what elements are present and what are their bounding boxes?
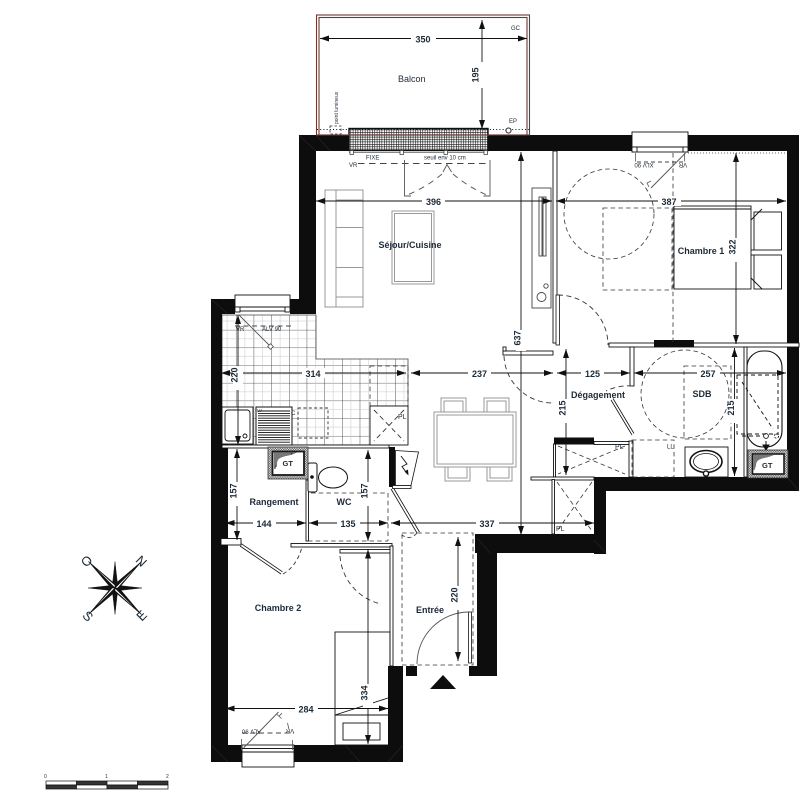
svg-text:Dégagement: Dégagement bbox=[571, 390, 625, 400]
svg-text:314: 314 bbox=[305, 369, 320, 379]
svg-text:PL: PL bbox=[556, 526, 565, 533]
svg-text:EP: EP bbox=[509, 119, 517, 125]
svg-text:387: 387 bbox=[661, 197, 676, 207]
svg-text:195: 195 bbox=[471, 67, 481, 82]
svg-text:220: 220 bbox=[450, 587, 460, 602]
svg-text:144: 144 bbox=[256, 519, 271, 529]
svg-text:257: 257 bbox=[700, 369, 715, 379]
svg-text:GC: GC bbox=[511, 26, 521, 32]
svg-text:Chambre 1: Chambre 1 bbox=[678, 246, 725, 256]
svg-text:XLV 90: XLV 90 bbox=[634, 161, 654, 167]
svg-text:0: 0 bbox=[44, 774, 47, 780]
svg-text:Chambre 2: Chambre 2 bbox=[255, 603, 302, 613]
svg-text:125: 125 bbox=[585, 369, 600, 379]
svg-text:PL: PL bbox=[398, 414, 407, 421]
svg-text:WC: WC bbox=[337, 497, 352, 507]
svg-text:215: 215 bbox=[726, 400, 736, 415]
svg-text:322: 322 bbox=[728, 239, 738, 254]
svg-text:C: C bbox=[291, 411, 296, 417]
svg-text:SDB: SDB bbox=[692, 389, 712, 399]
svg-text:VR: VR bbox=[285, 727, 294, 733]
svg-text:157: 157 bbox=[229, 483, 239, 498]
svg-text:GT: GT bbox=[762, 461, 773, 470]
svg-text:334: 334 bbox=[360, 685, 370, 700]
svg-text:350: 350 bbox=[415, 35, 430, 45]
svg-text:220: 220 bbox=[230, 367, 240, 382]
svg-text:Entrée: Entrée bbox=[416, 605, 444, 615]
svg-text:Rangement: Rangement bbox=[249, 497, 298, 507]
svg-text:Séjour/Cuisine: Séjour/Cuisine bbox=[378, 240, 441, 250]
svg-text:VR: VR bbox=[349, 163, 358, 169]
svg-text:LV: LV bbox=[257, 408, 262, 413]
svg-text:396: 396 bbox=[426, 197, 441, 207]
svg-text:237: 237 bbox=[472, 369, 487, 379]
svg-text:215: 215 bbox=[558, 400, 568, 415]
svg-text:2: 2 bbox=[166, 774, 169, 780]
svg-text:135: 135 bbox=[340, 519, 355, 529]
svg-text:GT: GT bbox=[283, 459, 294, 468]
svg-text:157: 157 bbox=[360, 483, 370, 498]
svg-text:point lumineux: point lumineux bbox=[334, 91, 340, 124]
svg-text:PL: PL bbox=[615, 444, 624, 451]
svg-text:VR: VR bbox=[236, 327, 245, 333]
svg-text:seuil env 10 cm: seuil env 10 cm bbox=[424, 156, 466, 162]
svg-text:284: 284 bbox=[298, 705, 313, 715]
svg-text:LL: LL bbox=[667, 445, 674, 451]
svg-text:1: 1 bbox=[105, 774, 108, 780]
svg-text:637: 637 bbox=[513, 330, 523, 345]
svg-text:337: 337 bbox=[479, 519, 494, 529]
svg-text:FIXE: FIXE bbox=[366, 156, 379, 162]
svg-text:ALV 90: ALV 90 bbox=[262, 327, 282, 333]
svg-text:Balcon: Balcon bbox=[398, 74, 426, 84]
